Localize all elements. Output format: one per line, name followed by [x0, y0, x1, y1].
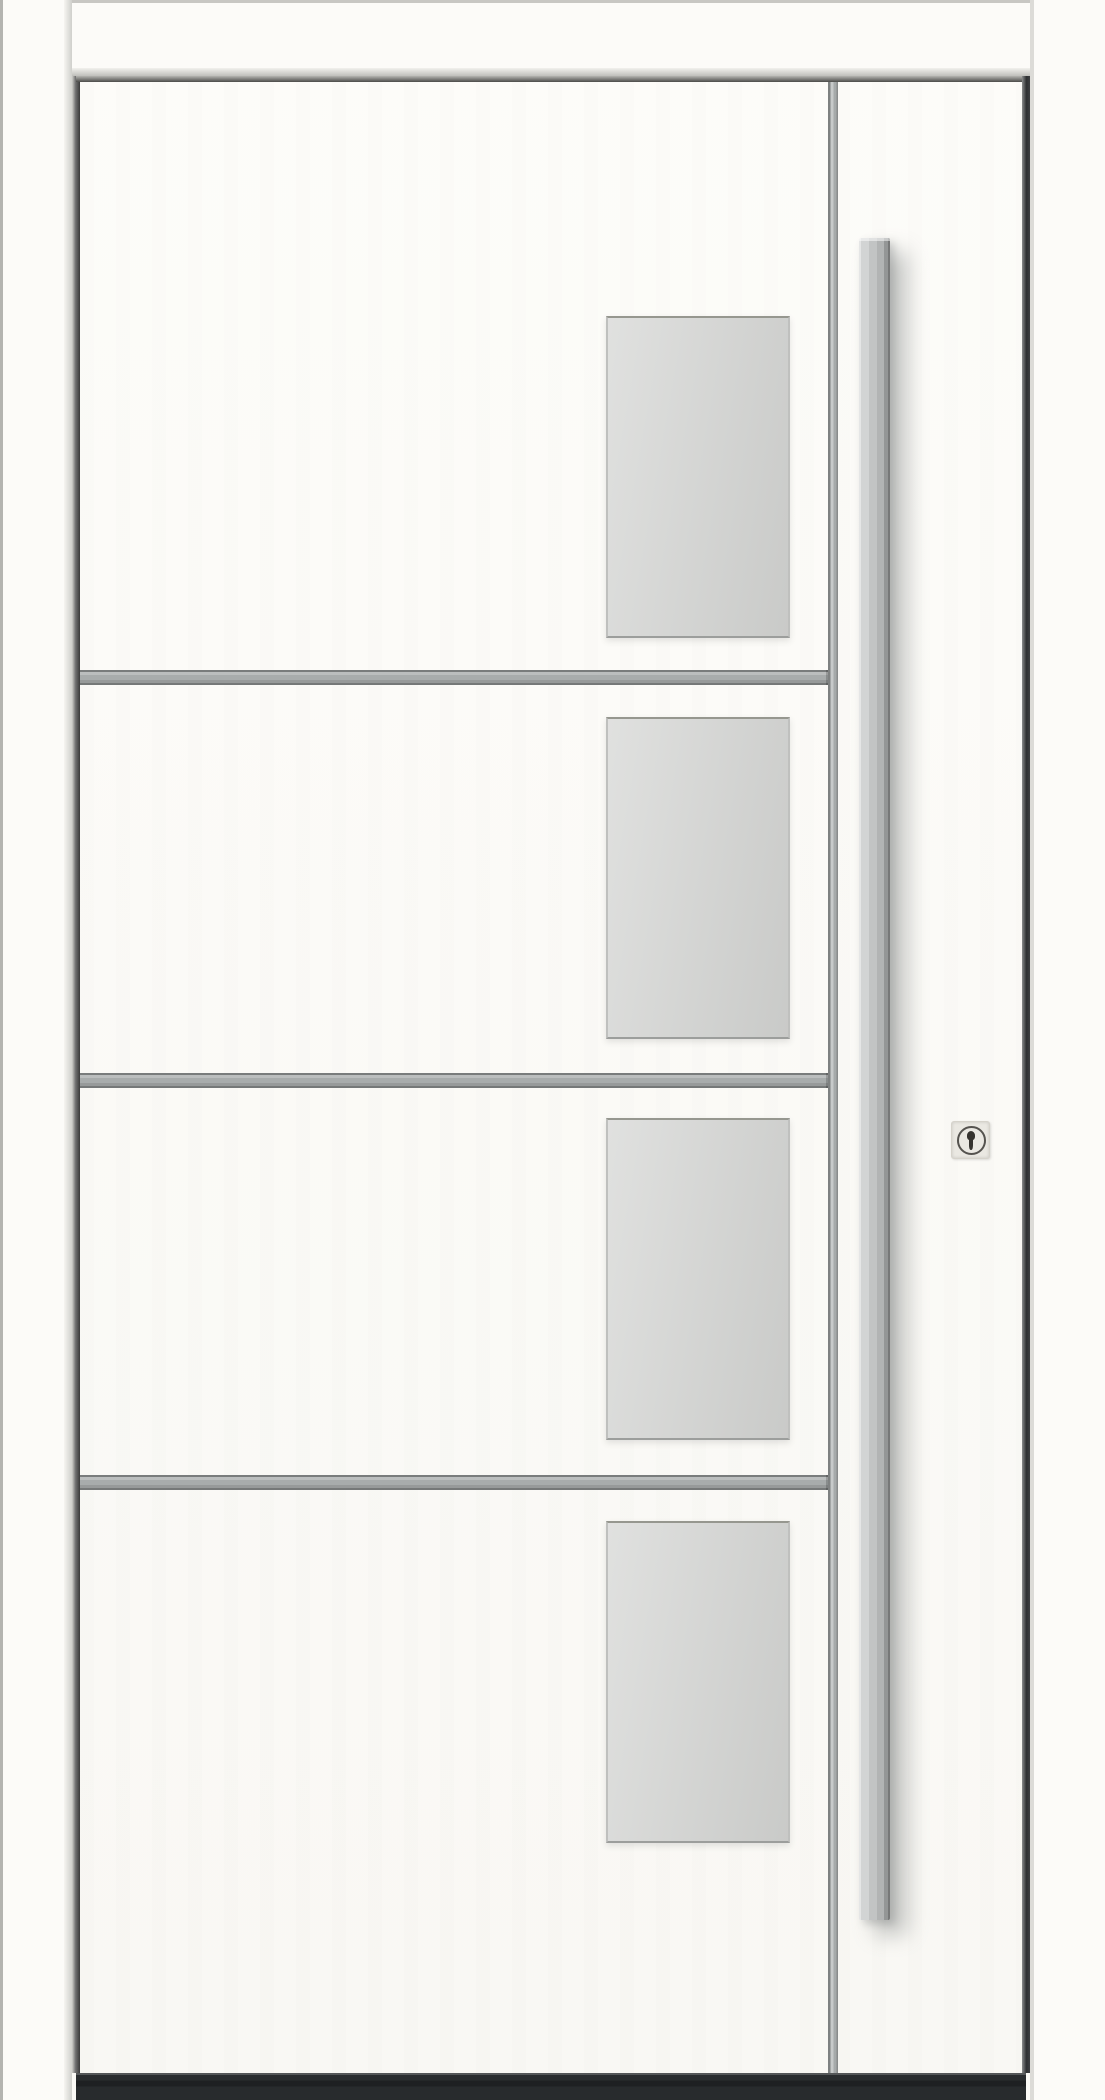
glass-pane-2 [606, 717, 790, 1039]
divider-bar-3 [80, 1475, 830, 1490]
door-threshold [76, 2073, 1026, 2100]
lock-keyhole-slot [969, 1138, 973, 1150]
frame-left-outer-edge [0, 0, 3, 2100]
pull-handle-bar [859, 238, 890, 1920]
door-edge-right-shadow [1022, 76, 1030, 2073]
divider-bar-2 [80, 1073, 830, 1088]
frame-left-inner-edge [64, 0, 72, 2100]
frame-right-inner-edge [1030, 0, 1034, 2100]
glass-pane-3 [606, 1118, 790, 1440]
door-product-photo [0, 0, 1105, 2100]
door-frame-left [0, 0, 72, 2100]
divider-bar-1 [80, 670, 830, 685]
glass-pane-1 [606, 316, 790, 638]
door-frame-right [1030, 0, 1105, 2100]
vertical-trim-strip [828, 82, 838, 2073]
frame-top-inner-edge [72, 68, 1030, 76]
frame-top-outer-edge [72, 0, 1030, 3]
lock-cylinder-rosette [951, 1121, 990, 1159]
door-edge-top-shadow [76, 76, 1030, 82]
glass-pane-4 [606, 1521, 790, 1843]
door-edge-left-shadow [72, 76, 80, 2073]
door-frame-top [72, 0, 1030, 76]
